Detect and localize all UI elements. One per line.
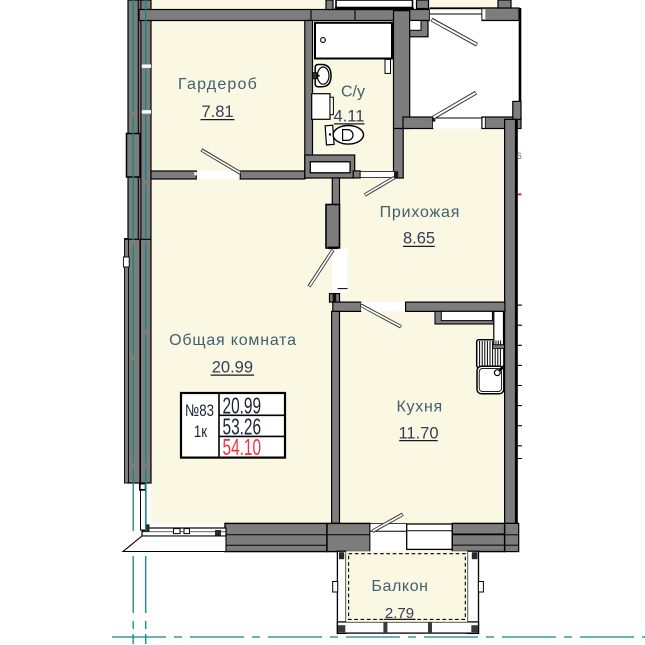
svg-text:Балкон: Балкон (371, 578, 428, 595)
svg-text:1к: 1к (194, 423, 207, 442)
svg-text:Прихожая: Прихожая (380, 204, 461, 221)
svg-text:4.11: 4.11 (334, 108, 365, 126)
svg-text:11.70: 11.70 (398, 424, 438, 442)
svg-text:6: 6 (517, 151, 522, 161)
svg-text:54.10: 54.10 (223, 435, 262, 461)
svg-text:7.81: 7.81 (201, 103, 233, 121)
svg-text:С/у: С/у (341, 84, 365, 101)
svg-text:№83: №83 (185, 402, 214, 421)
svg-text:8.65: 8.65 (403, 230, 435, 248)
svg-text:20.99: 20.99 (212, 359, 253, 377)
svg-text:Кухня: Кухня (397, 399, 443, 416)
svg-text:Гардероб: Гардероб (178, 76, 258, 93)
svg-text:Общая комната: Общая комната (169, 332, 297, 349)
